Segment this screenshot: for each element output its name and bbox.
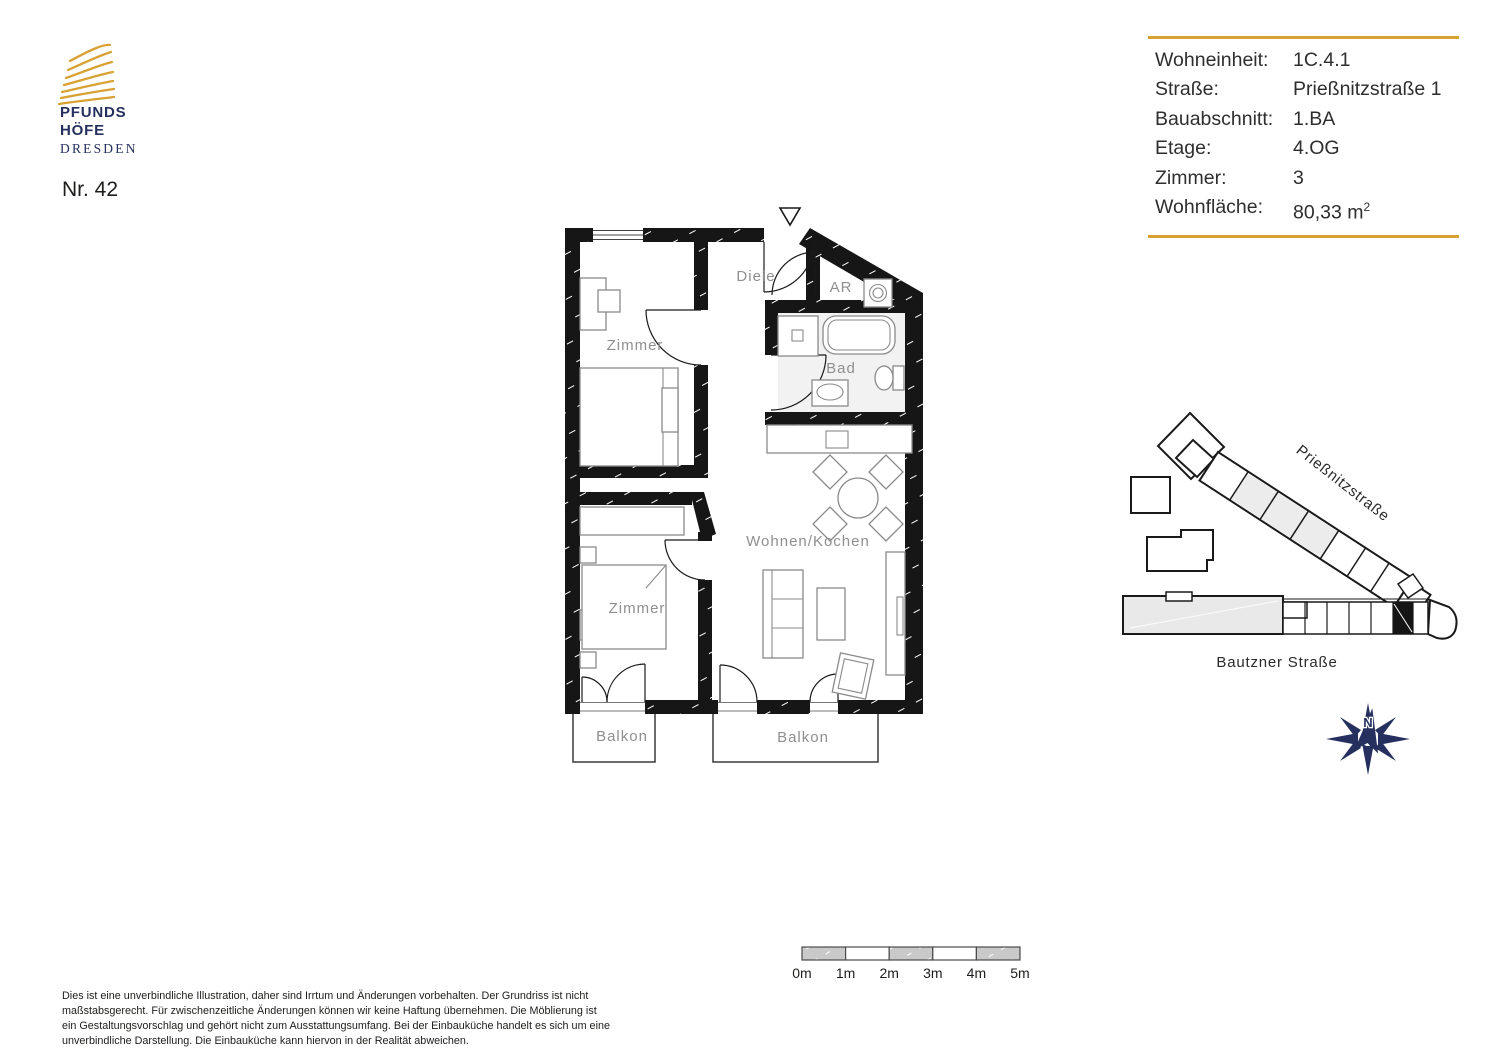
disclaimer-line: ein Gestaltungsvorschlag und gehört nich… (62, 1019, 610, 1034)
site-row-step (1283, 602, 1307, 618)
room-label-diele: Diele (736, 268, 775, 285)
scale-tick-4m: 4m (967, 965, 986, 981)
scale-tick-1m: 1m (836, 965, 855, 981)
compass-north-label: N (1363, 715, 1372, 730)
scale-tick-3m: 3m (923, 965, 942, 981)
scale-tick-5m: 5m (1010, 965, 1029, 981)
plan-sheet: PFUNDS HÖFE DRESDEN Nr. 42 Wohneinheit: … (0, 0, 1497, 1058)
room-label-zimmer-top: Zimmer (607, 337, 664, 354)
site-building-square (1131, 477, 1170, 513)
disclaimer-text: Dies ist eine unverbindliche Illustratio… (62, 989, 610, 1049)
drawing-canvas: Diele AR Zimmer Bad Wohnen/Kochen Zimmer… (0, 0, 1497, 1058)
furniture-washing-machine (864, 279, 892, 307)
room-label-zimmer-bottom: Zimmer (609, 600, 666, 617)
compass-rose-icon: N (1326, 703, 1410, 775)
entrance-arrow-icon (780, 208, 800, 225)
scale-bar: 0m 1m 2m 3m 4m 5m (792, 947, 1029, 981)
site-plan: Prießnitzstraße Bautzner Straße N (1123, 413, 1457, 775)
room-label-bad: Bad (826, 360, 856, 377)
scale-tick-2m: 2m (879, 965, 898, 981)
furniture-living-kitchen (763, 425, 912, 699)
furniture-bedroom-bottom (580, 507, 684, 668)
room-label-balkon-right: Balkon (777, 729, 829, 746)
site-building-tip (1428, 600, 1457, 639)
disclaimer-line: unverbindliche Darstellung. Die Einbaukü… (62, 1034, 610, 1049)
site-row-notch (1166, 592, 1192, 601)
room-label-wohnen-kochen: Wohnen/Kochen (746, 533, 870, 550)
street-label-bautzner-strasse: Bautzner Straße (1216, 654, 1337, 671)
disclaimer-line: Dies ist eine unverbindliche Illustratio… (62, 989, 610, 1004)
window (593, 228, 643, 242)
disclaimer-line: maßstabsgerecht. Für zwischenzeitliche Ä… (62, 1004, 610, 1019)
room-label-balkon-left: Balkon (596, 728, 648, 745)
furniture-bedroom-top (580, 278, 678, 466)
scale-tick-0m: 0m (792, 965, 811, 981)
room-label-ar: AR (830, 279, 853, 296)
site-building-l-shape (1147, 530, 1213, 571)
floor-plan: Diele AR Zimmer Bad Wohnen/Kochen Zimmer… (565, 208, 923, 762)
